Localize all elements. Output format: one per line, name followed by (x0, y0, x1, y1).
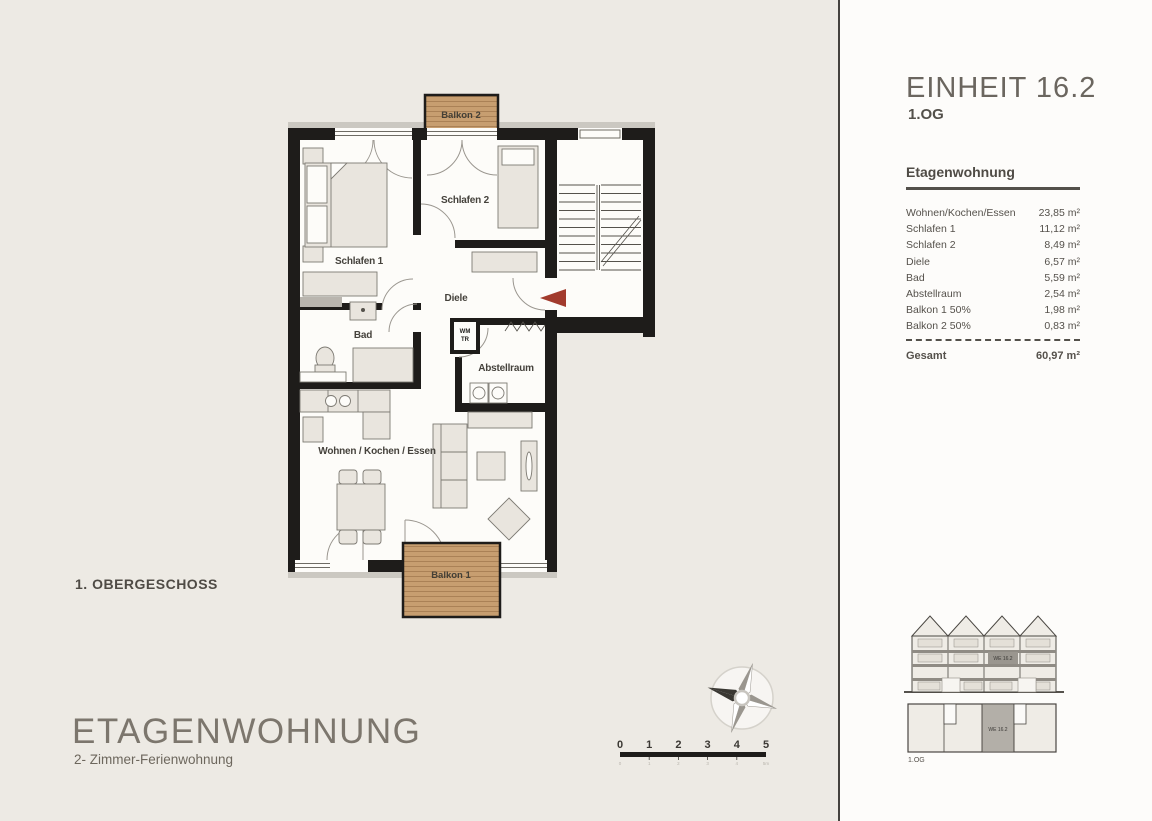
room-name: Balkon 2 50% (906, 318, 971, 334)
table-row: Bad 5,59 m² (906, 270, 1080, 286)
table-row: Wohnen/Kochen/Essen 23,85 m² (906, 205, 1080, 221)
building-elevation: WE 16.2 (904, 608, 1064, 698)
room-area: 11,12 m² (1039, 221, 1080, 237)
scale-number: 5 (763, 739, 769, 751)
room-name: Bad (906, 270, 925, 286)
room-label-wohnen: Wohnen / Kochen / Essen (318, 446, 436, 457)
unit-floor: 1.OG (908, 106, 944, 123)
room-area: 6,57 m² (1044, 254, 1080, 270)
table-row: Schlafen 2 8,49 m² (906, 237, 1080, 253)
kitchen-counter-l (363, 412, 390, 439)
area-table: Wohnen/Kochen/Essen 23,85 m² Schlafen 1 … (906, 205, 1080, 335)
scale-subnumber: 2 (677, 761, 680, 766)
section-title: Etagenwohnung (906, 164, 1015, 180)
table-row: Balkon 2 50% 0,83 m² (906, 318, 1080, 334)
room-label-diele: Diele (445, 293, 469, 304)
page-title: ETAGENWOHNUNG (72, 712, 421, 752)
unit-title: EINHEIT 16.2 (906, 72, 1096, 105)
page-subtitle: 2- Zimmer-Ferienwohnung (74, 752, 233, 767)
room-name: Diele (906, 254, 930, 270)
room-label-balkon2: Balkon 2 (441, 110, 481, 121)
sofa (433, 424, 467, 508)
room-area: 1,98 m² (1044, 302, 1080, 318)
info-panel: EINHEIT 16.2 1.OG Etagenwohnung Wohnen/K… (838, 0, 1152, 821)
room-label-balkon1: Balkon 1 (431, 570, 471, 581)
room-area: 2,54 m² (1044, 286, 1080, 302)
room-name: Abstellraum (906, 286, 961, 302)
elevation-unit-label: WE 16.2 (993, 656, 1012, 662)
scale-bar: 0 1 2 3 4 5 0 1 2 3 4 5m (616, 736, 776, 772)
sink (340, 396, 351, 407)
floor-label: 1. OBERGESCHOSS (75, 576, 218, 592)
floor-plan: Balkon 2 (283, 86, 663, 626)
toilet-tank (315, 365, 335, 372)
bath-shelf (300, 297, 342, 307)
scale-number: 3 (705, 739, 711, 751)
divider-rule (906, 187, 1080, 190)
room-label-schlafen1: Schlafen 1 (335, 256, 384, 267)
dashed-divider (906, 339, 1080, 341)
room-label-schlafen2: Schlafen 2 (441, 195, 490, 206)
scale-subnumber: 1 (648, 761, 651, 766)
chair (339, 530, 357, 544)
nightstand (303, 148, 323, 164)
shower (353, 348, 413, 382)
counter (468, 412, 532, 428)
room-area: 5,59 m² (1044, 270, 1080, 286)
chair (363, 530, 381, 544)
room-label-bad: Bad (354, 330, 372, 341)
keyplan-unit-label: WE 16.2 (988, 727, 1007, 733)
dining-table (337, 484, 385, 530)
scale-number: 4 (734, 739, 741, 751)
balcony-2: Balkon 2 (425, 95, 498, 133)
room-area: 0,83 m² (1044, 318, 1080, 334)
table-row: Diele 6,57 m² (906, 254, 1080, 270)
scale-subnumber: 3 (706, 761, 709, 766)
washer-dryer-closet: WM TR (450, 318, 480, 354)
table-row: Schlafen 1 11,12 m² (906, 221, 1080, 237)
scale-subnumber: 0 (619, 761, 622, 766)
total-row: Gesamt 60,97 m² (906, 348, 1080, 364)
total-value: 60,97 m² (1036, 348, 1080, 364)
shower-tray (300, 372, 346, 382)
chair (339, 470, 357, 484)
table-row: Balkon 1 50% 1,98 m² (906, 302, 1080, 318)
hall-closet (472, 252, 537, 272)
room-name: Schlafen 2 (906, 237, 956, 253)
wardrobe (303, 272, 377, 296)
nightstand (303, 246, 323, 262)
scale-number: 2 (675, 739, 681, 751)
scale-number: 1 (646, 739, 652, 751)
scale-number: 0 (617, 739, 623, 751)
scale-subnumber: 5m (763, 761, 770, 766)
room-name: Balkon 1 50% (906, 302, 971, 318)
room-area: 8,49 m² (1044, 237, 1080, 253)
plan-sheet: Balkon 2 (0, 0, 1152, 821)
sink (326, 396, 337, 407)
room-area: 23,85 m² (1039, 205, 1080, 221)
balcony-1: Balkon 1 (403, 543, 500, 617)
room-name: Wohnen/Kochen/Essen (906, 205, 1016, 221)
label-tr: TR (461, 337, 470, 343)
room-name: Schlafen 1 (906, 221, 956, 237)
table-row: Abstellraum 2,54 m² (906, 286, 1080, 302)
label-wm: WM (460, 329, 471, 335)
key-plan: WE 16.2 1.OG (904, 702, 1064, 764)
keyplan-floor-label: 1.OG (908, 757, 925, 764)
fridge (303, 417, 323, 442)
compass-icon (702, 658, 782, 738)
scale-subnumber: 4 (736, 761, 739, 766)
chair (363, 470, 381, 484)
total-label: Gesamt (906, 348, 946, 364)
coffee-table (477, 452, 505, 480)
room-label-abstellraum: Abstellraum (478, 363, 534, 374)
